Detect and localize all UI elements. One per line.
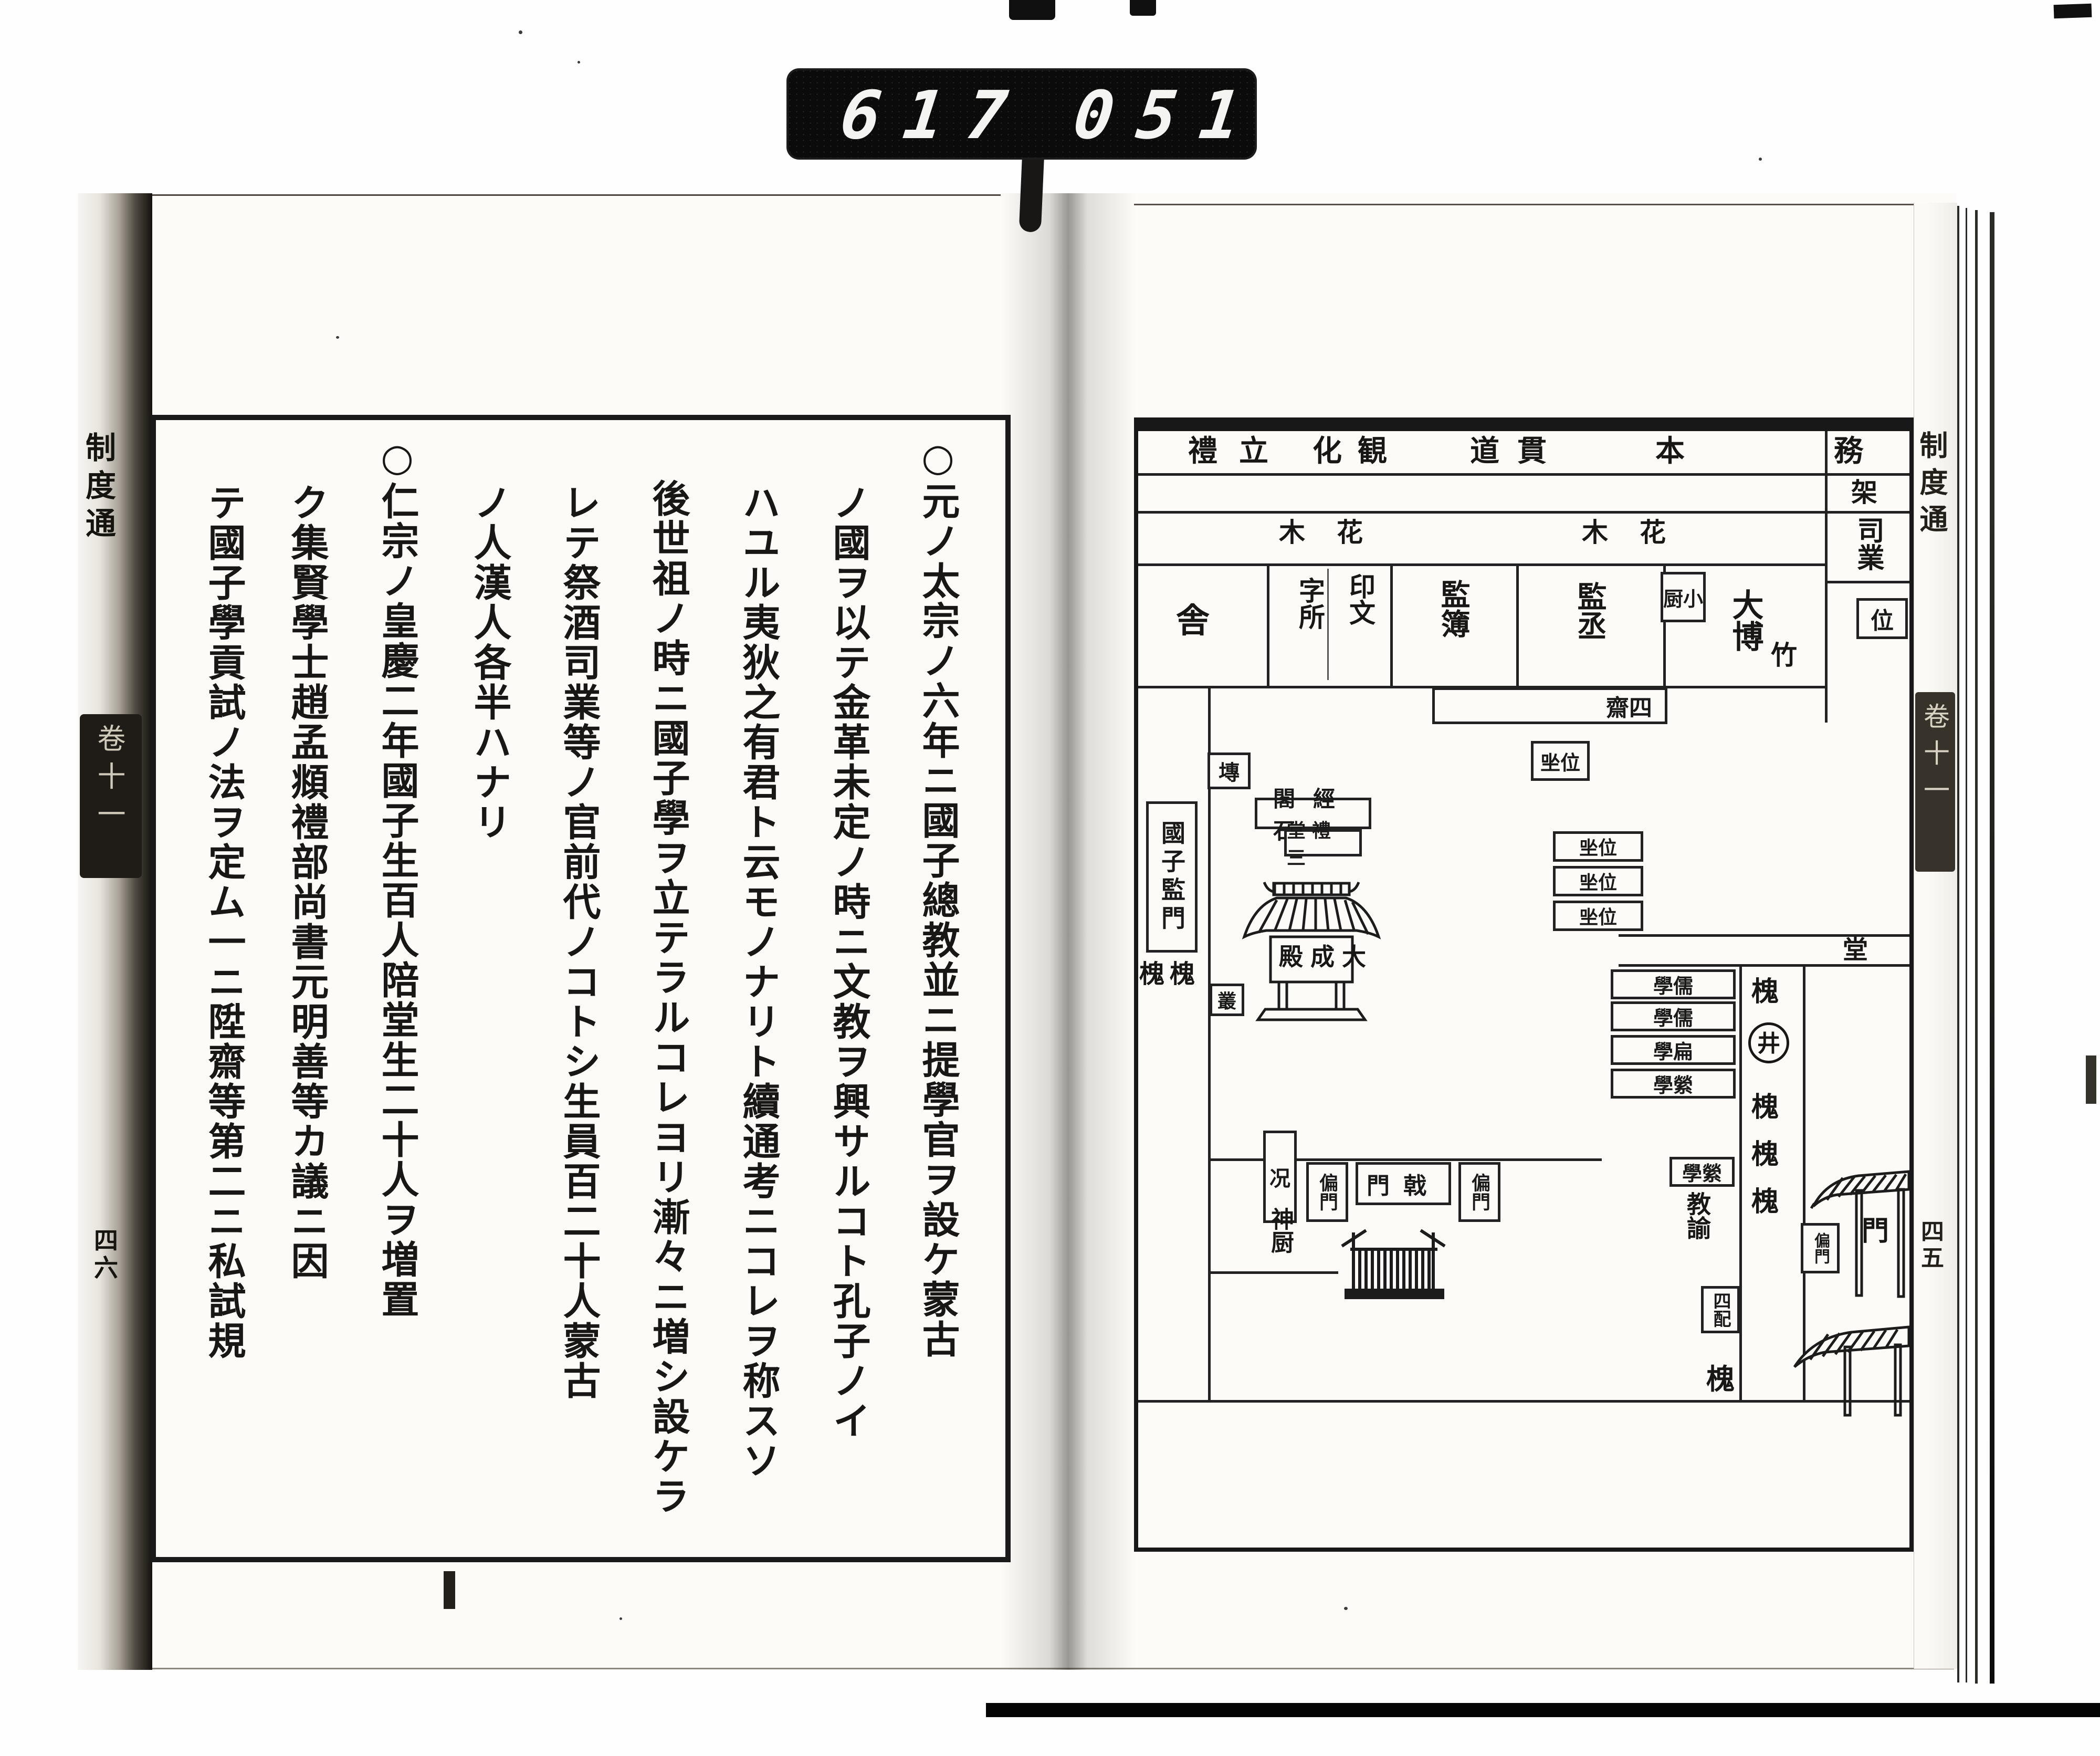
top-black-tab xyxy=(1009,0,1055,20)
counter-digits-right: 051 xyxy=(1069,77,1268,154)
seat-box-0: 㘴位 xyxy=(1531,741,1590,781)
page-stack-edge xyxy=(1957,206,1959,1682)
left-edge-title: 制度通 xyxy=(83,432,113,545)
scholar-room-box-3: 學扁 xyxy=(1611,1035,1736,1065)
grid-line xyxy=(1267,563,1269,688)
halberd-gate-box: 門戟 xyxy=(1356,1162,1451,1205)
seat-box-3: 㘴位 xyxy=(1553,901,1643,931)
grid-line xyxy=(1138,511,1909,514)
text-column-7: ○仁宗ノ皇慶二年國子生百人陪堂生二十人ヲ増置 xyxy=(337,435,416,1517)
page-stack-edge xyxy=(1966,208,1967,1682)
fence-illustration xyxy=(1338,1228,1449,1306)
four-correlates-box: 四配 xyxy=(1701,1286,1740,1333)
left-edge-volume-blotch: 卷十一 xyxy=(80,714,142,878)
pagoda-tree: 槐 xyxy=(1751,1188,1779,1216)
hall-name-hon: 本 xyxy=(1655,436,1685,466)
hall-name-rei: 禮 xyxy=(1188,436,1217,466)
rack-label: 架 xyxy=(1851,479,1877,506)
left-edge-volume: 卷十一 xyxy=(94,724,123,837)
left-page-top-edge xyxy=(143,194,1001,196)
dust-speck xyxy=(619,1617,622,1620)
cell-inner-divider xyxy=(1327,569,1329,680)
top-black-tab xyxy=(2054,4,2092,18)
text-column-4: 後世祖ノ時ニ國子學ヲ立テラルコレヨリ漸々ニ増シ設ケラ xyxy=(608,479,687,1561)
page-stack-edge xyxy=(1975,210,1978,1684)
text-column-2: ノ國ヲ以テ金革未定ノ時ニ文教ヲ興サルコト孔子ノイ xyxy=(789,483,867,1565)
grid-line xyxy=(1138,563,1825,566)
wall-box-brick: 塼 xyxy=(1207,752,1251,789)
cell-proctor: 監丞 xyxy=(1575,581,1604,640)
cell-print-office-left: 字所 xyxy=(1297,577,1323,630)
right-edge-volume-blotch: 卷十一 xyxy=(1915,692,1955,872)
side-gate-small-box: 偏門 xyxy=(1801,1223,1840,1273)
text-column-8: ク集賢學士趙孟頫禮部尚書元明善等カ議ニ因 xyxy=(247,483,325,1565)
side-gate-west-box: 偏門 xyxy=(1306,1162,1348,1222)
text-column-5: レテ祭酒司業等ノ官前代ノコトシ生員百二十人蒙古 xyxy=(519,483,597,1565)
right-fold-strip xyxy=(1914,203,1957,1669)
garden-label-east: 木花 xyxy=(1582,519,1697,546)
scholar-room-box-5: 學縈 xyxy=(1669,1157,1735,1187)
main-gate-box: 國子監門 xyxy=(1146,801,1198,953)
west-wall-line xyxy=(1208,686,1211,1401)
hall-name-kan: 観 xyxy=(1358,436,1387,466)
counter-digits-left: 617 xyxy=(836,77,1035,154)
pagoda-tree: 槐 xyxy=(1751,978,1779,1006)
cell-erudite: 大博 xyxy=(1729,589,1761,652)
bamboo-label: 竹 xyxy=(1771,642,1797,668)
dust-speck xyxy=(519,30,522,34)
margin-tick xyxy=(2086,1055,2096,1104)
margin-tick xyxy=(444,1571,455,1609)
side-gate-east-box: 偏門 xyxy=(1458,1162,1500,1222)
grid-line xyxy=(1208,1271,1338,1274)
top-black-tab xyxy=(1130,0,1156,16)
cell-dormitory: 舎 xyxy=(1176,604,1210,638)
hall-name-ritsu: 立 xyxy=(1239,436,1268,466)
page-stack-edge xyxy=(1990,212,1994,1684)
pagoda-tree: 槐 xyxy=(1751,1094,1779,1121)
seat-box-1: 㘴位 xyxy=(1553,831,1643,862)
left-edge-folio: 四六 xyxy=(92,1228,117,1282)
dust-speck xyxy=(1759,158,1762,161)
hall-label: 堂 xyxy=(1843,937,1868,963)
grid-line xyxy=(1739,964,1742,1400)
seat-box-2: 㘴位 xyxy=(1553,866,1643,896)
text-column-6: ノ人漢人各半ハナリ xyxy=(429,483,508,1565)
right-edge-volume: 卷十一 xyxy=(1921,703,1948,813)
sacrificial-kitchen-label: 神厨 xyxy=(1268,1207,1291,1253)
bottom-black-rule xyxy=(986,1703,2100,1717)
cell-director: 司業 xyxy=(1854,516,1882,571)
grid-line xyxy=(1516,563,1519,688)
pagoda-tree: 槐 xyxy=(1751,1141,1779,1168)
left-fold-strip xyxy=(78,193,152,1670)
guozijian-map-frame: 禮 立 化 観 道 貫 本 務 木花 木花 架 舎 印文 字所 監簿 監丞 厨小… xyxy=(1134,417,1914,1552)
book-gutter-shadow xyxy=(1001,193,1136,1670)
hall-name-ka: 化 xyxy=(1312,436,1342,466)
scholar-room-box-4: 學縈 xyxy=(1611,1069,1736,1099)
east-gate-label: 門 xyxy=(1862,1218,1889,1245)
text-column-1: ○元ノ太宗ノ六年ニ國子總教並ニ提學官ヲ設ケ蒙古 xyxy=(878,435,957,1517)
tablet-position-box: 位 xyxy=(1856,598,1908,639)
digital-counter: 617 051 xyxy=(786,68,1257,160)
scholar-room-box-1: 學儒 xyxy=(1611,969,1736,999)
grid-line xyxy=(1825,581,1909,583)
dust-speck xyxy=(1344,1607,1348,1610)
small-kitchen-box: 厨小 xyxy=(1661,572,1706,622)
instructor-label: 教諭 xyxy=(1685,1191,1709,1240)
right-edge-folio: 四五 xyxy=(1918,1219,1941,1272)
grid-line xyxy=(1138,473,1909,476)
well-marker: 井 xyxy=(1748,1022,1789,1063)
book-scan-photo: 617 051 制度通 卷十一 四六 制度通 卷十一 四五 ○元ノ太宗ノ六年ニ國… xyxy=(0,0,2100,1756)
text-column-9: テ國子學貢試ノ法ヲ定ム一ニ陞齋等第二ニ私試規 xyxy=(164,483,243,1565)
text-column-3: ハユル夷狄之有君ト云モノナリト續通考ニコレヲ称スソ xyxy=(698,483,777,1565)
dust-speck xyxy=(336,336,339,339)
grid-line xyxy=(1825,431,1828,723)
well-circle: 井 xyxy=(1748,1022,1789,1063)
cell-registrar: 監簿 xyxy=(1438,579,1468,638)
west-pagoda-trees: 槐槐 xyxy=(1139,961,1200,987)
four-halls-band: 齋四 xyxy=(1432,687,1667,724)
dust-speck xyxy=(577,61,580,64)
grid-line xyxy=(1390,563,1393,688)
hall-name-mu: 務 xyxy=(1834,436,1863,466)
cell-print-office-right: 印文 xyxy=(1347,573,1373,625)
scholar-room-box-2: 學儒 xyxy=(1611,1001,1736,1031)
corner-gate-illustration xyxy=(1783,1312,1909,1417)
garden-label-west: 木花 xyxy=(1279,519,1394,546)
hall-name-kan2: 貫 xyxy=(1517,436,1547,466)
hall-name-dou: 道 xyxy=(1470,436,1499,466)
three-rites-hall-plaque: 堂禮三 xyxy=(1284,829,1362,856)
right-page-top-edge xyxy=(1134,204,1956,205)
taiseiden-name: 殿成大 xyxy=(1279,945,1373,969)
right-edge-title: 制度通 xyxy=(1917,431,1946,541)
bottom-pagoda-tree: 槐 xyxy=(1706,1365,1735,1393)
